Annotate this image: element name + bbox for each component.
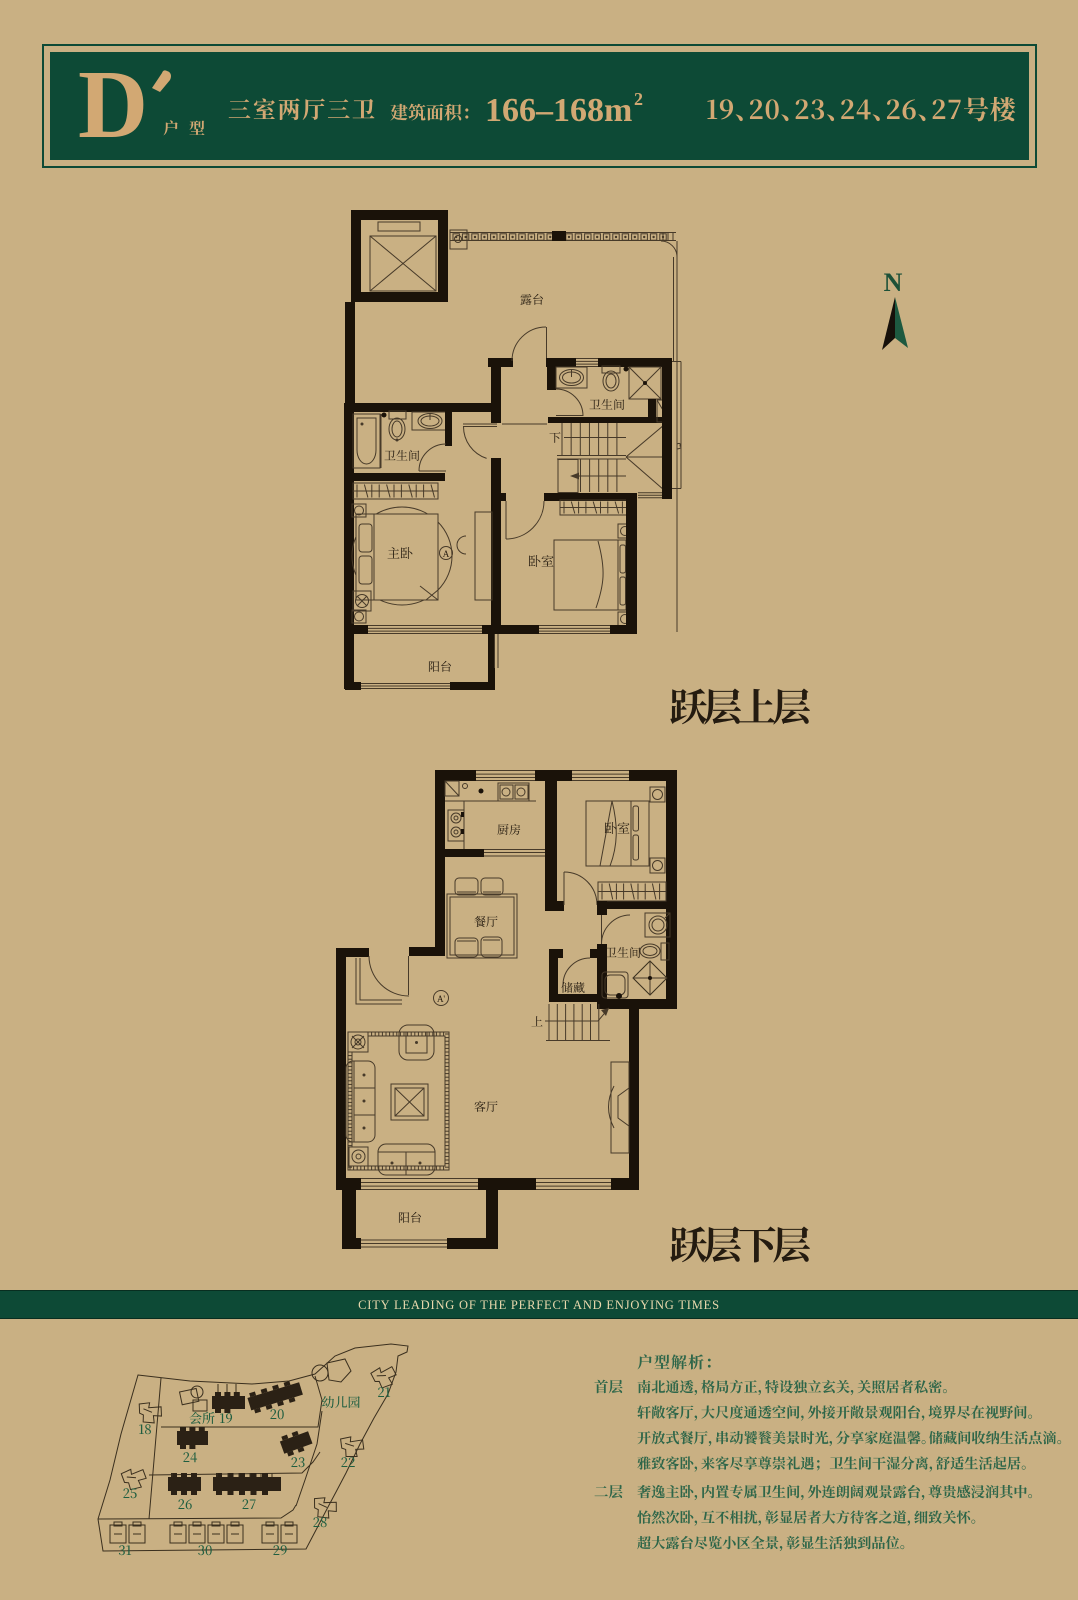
svg-text:CITY LEADING OF THE PERFECT AN: CITY LEADING OF THE PERFECT AND ENJOYING…: [358, 1298, 720, 1312]
svg-text:N: N: [884, 268, 903, 297]
svg-text:166–168m: 166–168m: [485, 92, 632, 129]
svg-text:A': A': [437, 994, 445, 1004]
svg-text:A: A: [443, 549, 450, 559]
svg-text:2: 2: [634, 89, 643, 109]
svg-text:D: D: [78, 51, 148, 158]
